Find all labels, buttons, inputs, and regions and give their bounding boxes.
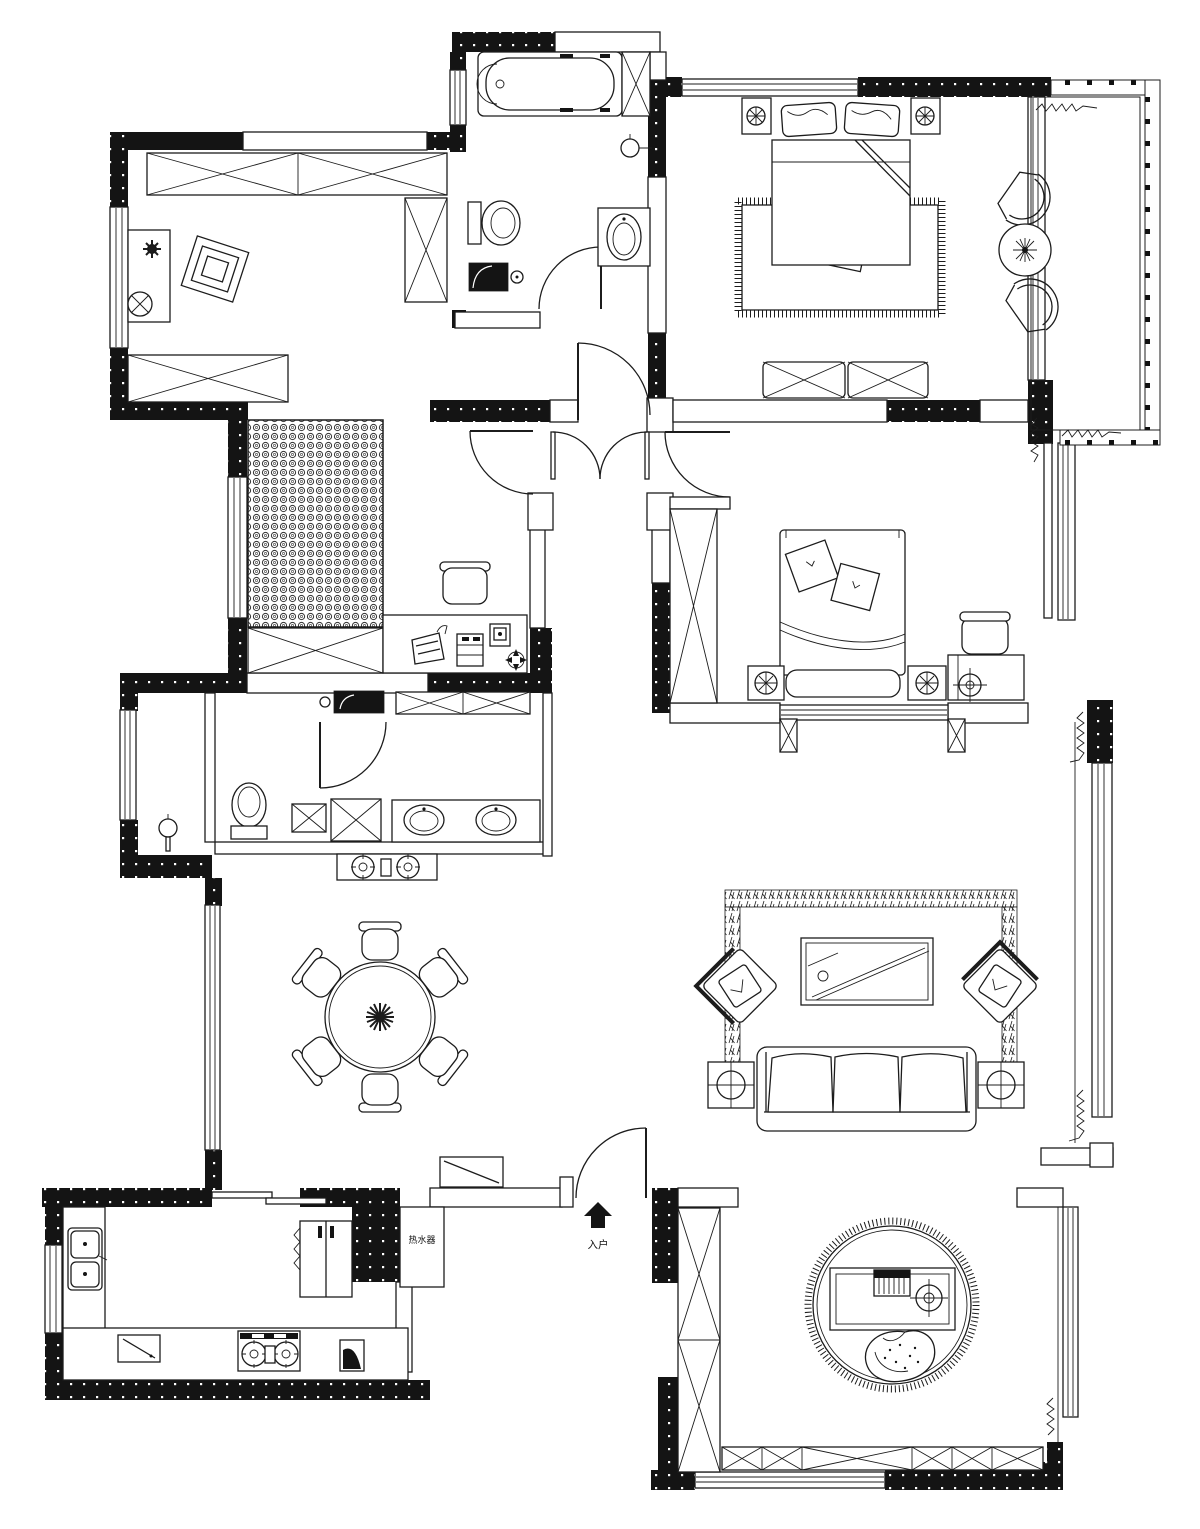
- window: [228, 477, 247, 618]
- bathtub: [477, 52, 622, 116]
- gas-stove: [238, 1331, 300, 1371]
- lounge-chair: [865, 1331, 934, 1382]
- low-cabinet: [848, 362, 928, 398]
- dining-table: [325, 962, 435, 1072]
- double-vanity: [392, 800, 540, 842]
- bathroom2-door: [320, 722, 386, 788]
- nightstand: [748, 666, 784, 700]
- refrigerator: [294, 1221, 352, 1297]
- toilet: [468, 201, 520, 245]
- window: [45, 1245, 62, 1333]
- window: [682, 79, 858, 96]
- washer: [469, 263, 523, 291]
- window: [110, 207, 128, 348]
- side-table-lamp: [978, 1062, 1024, 1108]
- room-dining: [291, 691, 530, 1112]
- entry-arrow-icon: [584, 1202, 612, 1228]
- room-piano: [678, 1188, 1043, 1472]
- wardrobe-run: [147, 153, 447, 195]
- entry-marker: 入户: [584, 1202, 612, 1251]
- round-plant-table: [999, 224, 1051, 276]
- window: [1058, 443, 1075, 620]
- window: [205, 905, 220, 1150]
- dining-chair: [359, 1074, 401, 1112]
- low-cabinet: [763, 362, 845, 398]
- curtain-icon: [1069, 1090, 1084, 1141]
- room-second-bathroom: [159, 783, 540, 851]
- chair-on-mat: [181, 236, 248, 302]
- tatami-bed: [248, 420, 383, 627]
- side-wardrobe: [405, 198, 447, 302]
- wardrobe: [670, 497, 730, 703]
- window: [120, 710, 136, 820]
- bay-sill: [1044, 443, 1052, 618]
- window: [1063, 1207, 1078, 1417]
- bed: [780, 530, 905, 697]
- floor-plan: 热水器 入户: [0, 0, 1200, 1529]
- sofa: [757, 1047, 976, 1131]
- armchair: [696, 945, 778, 1027]
- shower-tile: [292, 804, 326, 832]
- window-end-post: [780, 719, 797, 752]
- master-bed: [772, 102, 910, 265]
- room-cloakroom-study: [128, 153, 447, 402]
- room-living: [696, 890, 1041, 1131]
- floor-plan-drawing: 热水器 入户: [0, 0, 1200, 1529]
- burner-cabinet: [337, 854, 437, 880]
- cutting-board: [118, 1335, 160, 1362]
- wall-lamp-icon: [621, 134, 652, 157]
- wall-tv: [320, 691, 384, 713]
- keyboard-desk: [830, 1268, 955, 1330]
- entry-label: 入户: [588, 1238, 609, 1251]
- bedroom2-door: [665, 432, 730, 497]
- window-end-post: [948, 719, 965, 752]
- tub-side-cabinet: [622, 52, 650, 116]
- desk-chair: [960, 612, 1010, 654]
- wall-faucet-icon: [159, 814, 177, 851]
- armchair: [959, 942, 1041, 1024]
- dining-chair: [359, 922, 401, 960]
- double-door: [551, 432, 649, 479]
- drawer-unit: [457, 634, 483, 666]
- low-cabinet-run: [722, 1447, 1043, 1470]
- water-heater-label: 热水器: [408, 1234, 435, 1245]
- curtain-icon: [1070, 712, 1084, 762]
- room-master-bedroom: [738, 98, 942, 398]
- centerpiece-plant-icon: [366, 1003, 394, 1031]
- toilet: [231, 783, 267, 839]
- low-wardrobe: [128, 355, 288, 402]
- window: [450, 70, 466, 125]
- room-entry: 热水器 入户: [400, 1157, 612, 1287]
- sideboard: [396, 692, 530, 714]
- kitchen-sink: [68, 1228, 107, 1290]
- nightstand: [742, 98, 771, 134]
- pedestal-sink: [598, 208, 650, 266]
- side-table-lamp: [708, 1062, 754, 1108]
- nightstand: [908, 666, 946, 700]
- room-tatami-study: [248, 420, 527, 673]
- study-chair: [440, 562, 490, 604]
- window: [1092, 763, 1112, 1117]
- nightstand: [911, 98, 940, 134]
- room-second-bedroom: [670, 497, 1024, 703]
- curtain-icon: [1047, 1398, 1054, 1435]
- stool: [128, 292, 152, 316]
- tall-wardrobe: [678, 1188, 738, 1472]
- water-heater-nook: 热水器: [400, 1207, 444, 1287]
- coffee-table: [801, 938, 933, 1005]
- shoe-cabinet: [440, 1157, 503, 1187]
- room-main-bathroom: [468, 52, 652, 291]
- bathroom-door: [539, 247, 601, 309]
- entry-door: [576, 1128, 646, 1198]
- shower-tile: [331, 799, 381, 841]
- window: [780, 705, 948, 720]
- desk: [948, 655, 1024, 700]
- corridor-door: [578, 343, 650, 420]
- study-door: [470, 431, 533, 494]
- tatami-cabinet: [248, 628, 383, 673]
- corner-unit: [340, 1340, 364, 1371]
- desk-gadget: [490, 624, 510, 646]
- window: [695, 1472, 885, 1488]
